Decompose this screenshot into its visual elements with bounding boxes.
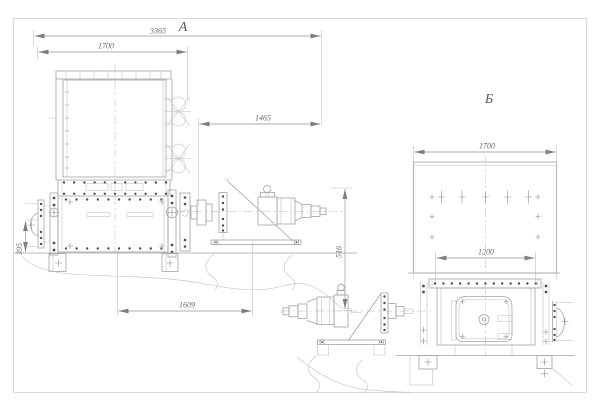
dim-mount-height-a: 395 [15,220,37,256]
eyebolt-icon-b [338,284,345,291]
dim-drive-height-a: 516 [331,188,352,311]
dim-body-width-b-text: 1200 [478,248,494,257]
dim-overall-width-a: 3365 [34,27,322,125]
view-b: Б 1700 1200 [281,92,575,393]
dim-hopper-width-a-text: 1700 [98,42,114,51]
technical-drawing: А 3365 1700 1465 395 516 [0,0,600,400]
view-b-body [421,282,550,357]
vibrator-icon-top [164,97,191,126]
dim-drive-height-a-text: 516 [335,246,344,258]
eyebolt-icon-a [264,186,271,198]
dim-drive-length-a-text: 1465 [255,114,271,123]
view-b-drive [281,284,432,355]
view-b-right-bracket [553,301,574,342]
drawing-sheet: А 3365 1700 1465 395 516 [0,0,600,400]
view-a: А 3365 1700 1465 395 516 [14,20,363,316]
dim-overall-width-a-text: 3365 [149,27,166,36]
dim-hopper-width-b-text: 1700 [479,142,495,151]
view-a-body [50,190,178,257]
view-a-label: А [178,20,188,35]
dim-base-length-a-text: 1609 [179,301,195,310]
dim-mount-height-a-text: 395 [15,243,24,256]
view-a-left-bracket [25,200,50,248]
vibrator-icon-bottom [164,144,191,173]
sheet-border [14,19,587,393]
view-a-adapter [58,180,170,196]
view-b-left-plate [421,282,428,345]
dim-drive-length-a: 1465 [199,114,321,207]
view-a-drive [176,179,344,251]
view-a-hopper [49,64,191,198]
view-b-label: Б [484,92,493,107]
inspection-hatch [452,297,513,342]
view-b-base [297,345,575,393]
dim-hopper-width-b: 1700 [414,142,557,164]
motor-a [277,198,326,224]
view-b-right-plate [543,282,549,345]
view-b-flange [408,273,560,288]
